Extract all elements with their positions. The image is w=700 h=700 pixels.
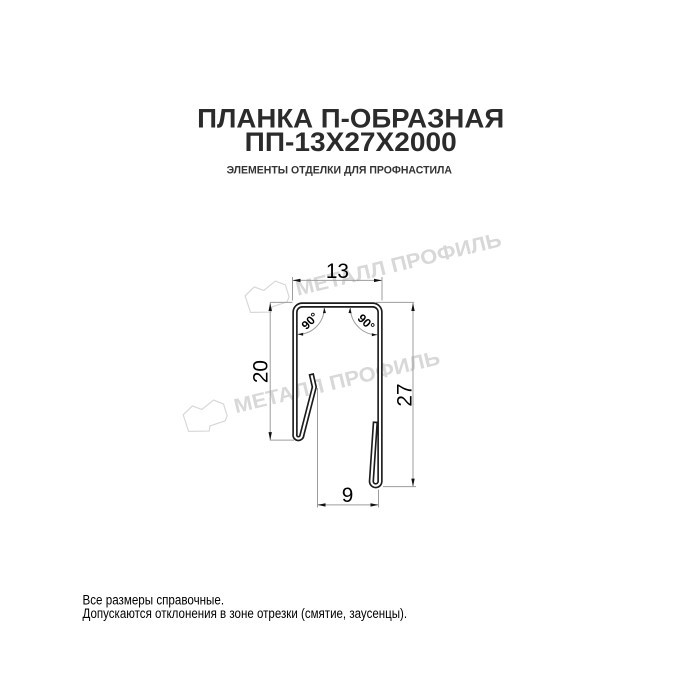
svg-text:9: 9 — [342, 484, 354, 507]
svg-text:Допускаются отклонения в зоне: Допускаются отклонения в зоне отрезки (с… — [83, 606, 408, 621]
svg-text:13: 13 — [326, 260, 349, 283]
svg-text:ПП-13Х27Х2000: ПП-13Х27Х2000 — [245, 127, 457, 157]
svg-text:20: 20 — [250, 360, 273, 383]
svg-text:90°: 90° — [299, 310, 322, 333]
svg-text:27: 27 — [394, 383, 417, 406]
svg-text:ЭЛЕМЕНТЫ ОТДЕЛКИ ДЛЯ ПРОФНАСТИ: ЭЛЕМЕНТЫ ОТДЕЛКИ ДЛЯ ПРОФНАСТИЛА — [227, 164, 453, 176]
svg-text:90°: 90° — [355, 311, 378, 334]
